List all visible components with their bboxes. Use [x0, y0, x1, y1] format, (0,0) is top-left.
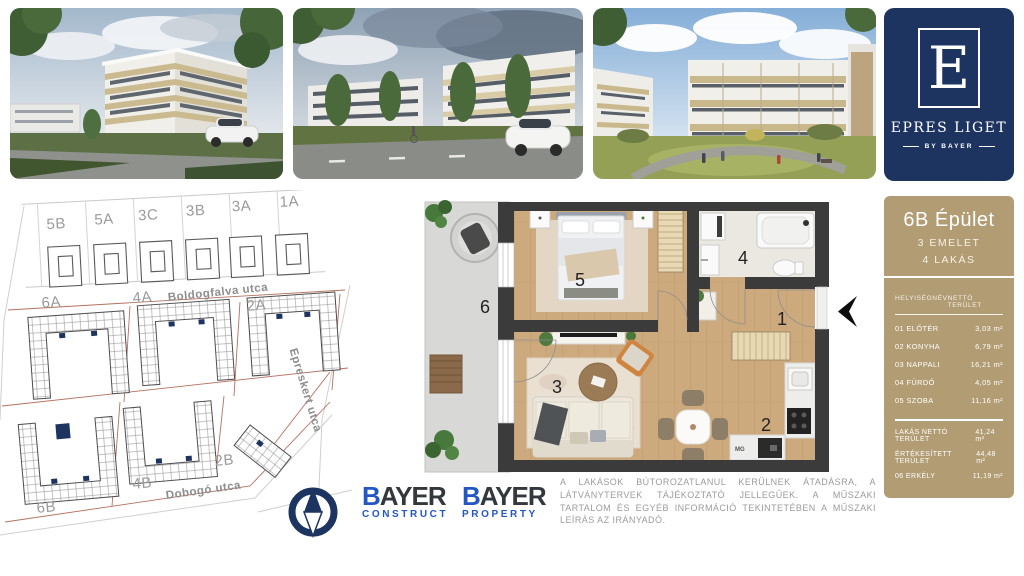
col-room-name: HELYISÉGNÉV [895, 295, 948, 309]
totals-divider [895, 419, 1003, 421]
compass-icon [292, 488, 334, 536]
render-photo-courtyard [593, 8, 876, 179]
e-monogram: E [918, 28, 980, 108]
table-row: 03 NAPPALI 16,21 m² [884, 360, 1014, 369]
room-number-kitchen: 2 [761, 415, 771, 435]
room-area: 11,16 m² [971, 396, 1003, 405]
room-area: 4,05 m² [975, 378, 1003, 387]
room-name: 04 FÜRDŐ [895, 378, 935, 387]
room-number-entry: 1 [777, 309, 787, 329]
room-number-bath: 4 [738, 248, 748, 268]
totals-row: 06 ERKÉLY 11,19 m² [884, 473, 1014, 480]
map-label-4b: 4B [132, 474, 153, 493]
room-name: 03 NAPPALI [895, 360, 940, 369]
map-label-1a: 1A [279, 193, 299, 211]
render-photo-street-view [293, 8, 583, 179]
brand-subtitle: BY BAYER [884, 143, 1014, 150]
room-number-bedroom: 5 [575, 270, 585, 290]
room-name: 01 ELŐTÉR [895, 324, 938, 333]
site-map: 5B 5A 3C 3B 3A 1A Boldogfalva utca 6A 4A… [0, 190, 360, 576]
epres-liget-logo-card: E EPRES LIGET BY BAYER [884, 8, 1014, 181]
room-name: 05 SZOBA [895, 396, 934, 405]
table-header: HELYISÉGNÉV NETTÓ TERÜLET [884, 295, 1014, 309]
room-area: 6,79 m² [975, 342, 1003, 351]
disclaimer-text: A LAKÁSOK BÚTOROZATLANUL KERÜLNEK ÁTADÁS… [560, 476, 876, 527]
table-row: 02 KONYHA 6,79 m² [884, 342, 1014, 351]
bayer-logos: BAYER CONSTRUCT BAYER PROPERTY [362, 484, 554, 520]
street-dobogo: Dobogó utca [165, 480, 242, 502]
total-name: ÉRTÉKESÍTETT TERÜLET [895, 451, 976, 465]
render-1-graphic [10, 8, 283, 179]
brand-title: EPRES LIGET [884, 120, 1014, 136]
bayer-construct-logo: BAYER CONSTRUCT [362, 484, 454, 520]
total-area: 11,19 m² [973, 473, 1003, 480]
bayer-rest: AYER [480, 481, 546, 511]
table-row: 01 ELŐTÉR 3,03 m² [884, 324, 1014, 333]
map-label-2b: 2B [214, 451, 235, 470]
lounger [430, 355, 462, 393]
building-title: 6B Épület [884, 196, 1014, 232]
map-label-3a: 3A [231, 197, 251, 215]
floor-plan: MG 6 5 4 1 3 2 [418, 192, 863, 480]
room-number-balcony: 6 [480, 297, 490, 317]
balcony [425, 200, 510, 472]
map-label-4a: 4A [132, 288, 153, 307]
total-name: LAKÁS NETTÓ TERÜLET [895, 429, 975, 443]
bayer-b: B [362, 481, 380, 511]
info-panel: 6B Épület 3 EMELET 4 LAKÁS HELYISÉGNÉV N… [884, 196, 1014, 498]
total-name: 06 ERKÉLY [895, 473, 935, 480]
floor-count: 3 EMELET [884, 237, 1014, 249]
middle-blocks [28, 292, 341, 399]
bayer-property-logo: BAYER PROPERTY [462, 484, 554, 520]
render-2-graphic [293, 8, 583, 179]
hanging-chair [451, 214, 499, 262]
total-area: 41,24 m² [975, 429, 1003, 443]
appliance-label: MG [735, 447, 745, 453]
map-label-3c: 3C [138, 206, 159, 224]
map-label-6b: 6B [36, 498, 57, 517]
table-header-rule [895, 314, 1003, 315]
render-3-graphic [593, 8, 876, 179]
map-label-3b: 3B [186, 202, 206, 220]
room-area: 16,21 m² [971, 360, 1003, 369]
room-area: 3,03 m² [975, 324, 1003, 333]
total-area: 44,48 m² [976, 451, 1003, 465]
col-net-area: NETTÓ TERÜLET [948, 295, 1003, 309]
unit-count: 4 LAKÁS [884, 254, 1014, 266]
bayer-division: CONSTRUCT [362, 509, 454, 520]
render-photo-building-corner [10, 8, 283, 179]
bedroom-furniture [530, 208, 653, 312]
totals-row: LAKÁS NETTÓ TERÜLET 41,24 m² [884, 429, 1014, 443]
table-row: 04 FÜRDŐ 4,05 m² [884, 378, 1014, 387]
brochure-page: { "brand": { "logo_letter": "E", "logo_t… [0, 0, 1024, 576]
map-label-6a: 6A [41, 293, 62, 312]
room-number-living: 3 [552, 377, 562, 397]
totals-row: ÉRTÉKESÍTETT TERÜLET 44,48 m² [884, 451, 1014, 465]
bayer-rest: AYER [380, 481, 446, 511]
top-parcels: 5B 5A 3C 3B 3A 1A [21, 190, 325, 288]
map-label-5a: 5A [94, 211, 114, 229]
entrance-arrow-icon [838, 296, 857, 327]
table-row: 05 SZOBA 11,16 m² [884, 396, 1014, 405]
room-name: 02 KONYHA [895, 342, 940, 351]
highlighted-unit-6b [55, 423, 70, 439]
map-label-5b: 5B [46, 215, 66, 233]
map-label-2a: 2A [246, 296, 267, 315]
bayer-b: B [462, 481, 480, 511]
panel-divider [884, 276, 1014, 278]
